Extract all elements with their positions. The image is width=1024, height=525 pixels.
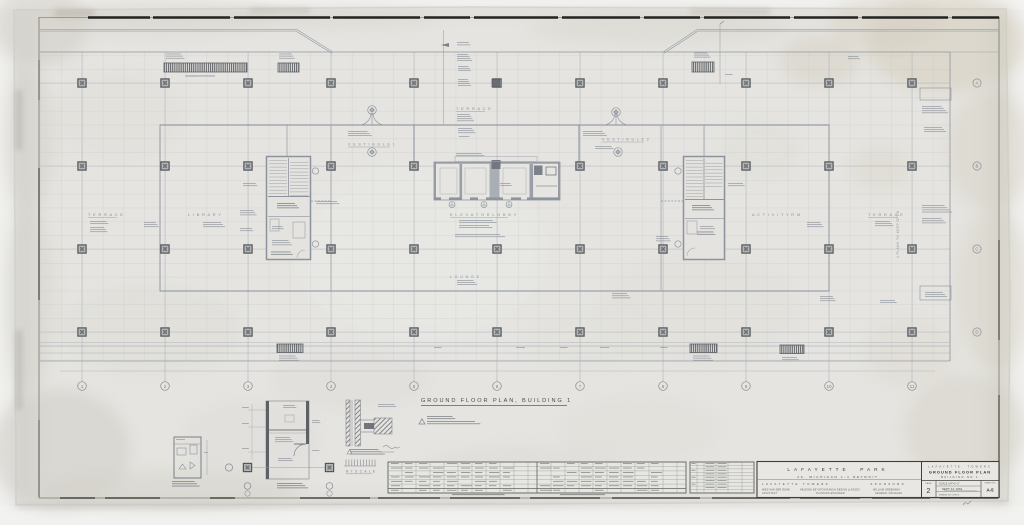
svg-text:E L E V A T O R L O B B Y: E L E V A T O R L O B B Y xyxy=(450,213,517,217)
svg-text:11: 11 xyxy=(910,384,915,389)
svg-text:PAGE: PAGE xyxy=(926,482,932,485)
svg-text:4 PLANK TO KEEP OPEN: 4 PLANK TO KEEP OPEN xyxy=(896,210,900,258)
svg-text:LAFAYETTE TOWERS: LAFAYETTE TOWERS xyxy=(762,482,830,486)
svg-text:7: 7 xyxy=(579,384,582,389)
svg-text:T E R R A C E: T E R R A C E xyxy=(88,213,124,217)
svg-text:T E R R A C E: T E R R A C E xyxy=(456,107,492,111)
svg-text:2: 2 xyxy=(927,488,931,495)
svg-text:4: 4 xyxy=(330,384,333,389)
svg-text:V E S T I B U L E 2: V E S T I B U L E 2 xyxy=(602,138,650,142)
svg-text:ARCHITECT: ARCHITECT xyxy=(762,492,778,495)
svg-text:D: D xyxy=(975,330,978,335)
svg-text:5: 5 xyxy=(413,384,416,389)
svg-text:SEPT 14, 1961: SEPT 14, 1961 xyxy=(942,487,963,491)
svg-text:LAFAYETTE PARK: LAFAYETTE PARK xyxy=(787,467,888,472)
svg-text:GENERAL MANAGER: GENERAL MANAGER xyxy=(875,492,902,495)
svg-text:A: A xyxy=(976,81,979,86)
svg-text:C: C xyxy=(975,247,978,252)
svg-text:10: 10 xyxy=(826,384,832,389)
svg-text:A-5: A-5 xyxy=(986,488,994,493)
svg-text:3: 3 xyxy=(247,384,250,389)
svg-text:L I B R A R Y: L I B R A R Y xyxy=(188,213,222,217)
svg-text:L O U N G E: L O U N G E xyxy=(450,275,480,279)
svg-text:PLANNING ENGINEER: PLANNING ENGINEER xyxy=(816,492,845,495)
svg-text:6: 6 xyxy=(496,384,499,389)
svg-text:8: 8 xyxy=(662,384,665,389)
svg-text:DRAWN NO CHECK: DRAWN NO CHECK xyxy=(939,493,960,496)
svg-text:1: 1 xyxy=(81,384,84,389)
svg-text:GROUND FLOOR PLAN, BUILDING: GROUND FLOOR PLAN, BUILDING 1 xyxy=(421,398,572,404)
svg-text:SPONSORS: SPONSORS xyxy=(870,482,906,486)
svg-text:LAFAYETTE TOWERS: LAFAYETTE TOWERS xyxy=(928,466,992,469)
svg-text:9: 9 xyxy=(745,384,748,389)
svg-text:SHEET NO: SHEET NO xyxy=(984,483,995,485)
svg-text:2: 2 xyxy=(164,384,167,389)
svg-text:B: B xyxy=(976,164,979,169)
svg-text:GROUND FLOOR PLAN: GROUND FLOOR PLAN xyxy=(929,470,991,475)
svg-text:N T S C A L E: N T S C A L E xyxy=(346,470,376,474)
svg-text:BUILDING NO 1: BUILDING NO 1 xyxy=(941,476,979,479)
svg-text:A C T I V I T Y R M: A C T I V I T Y R M xyxy=(752,213,801,217)
svg-text:29. MICHIGAN 1-1 DETROIT: 29. MICHIGAN 1-1 DETROIT xyxy=(797,475,878,479)
svg-text:V E S T I B U L E 1: V E S T I B U L E 1 xyxy=(348,143,396,147)
svg-text:SCALE 1/4”=1’-0”: SCALE 1/4”=1’-0” xyxy=(939,482,960,486)
